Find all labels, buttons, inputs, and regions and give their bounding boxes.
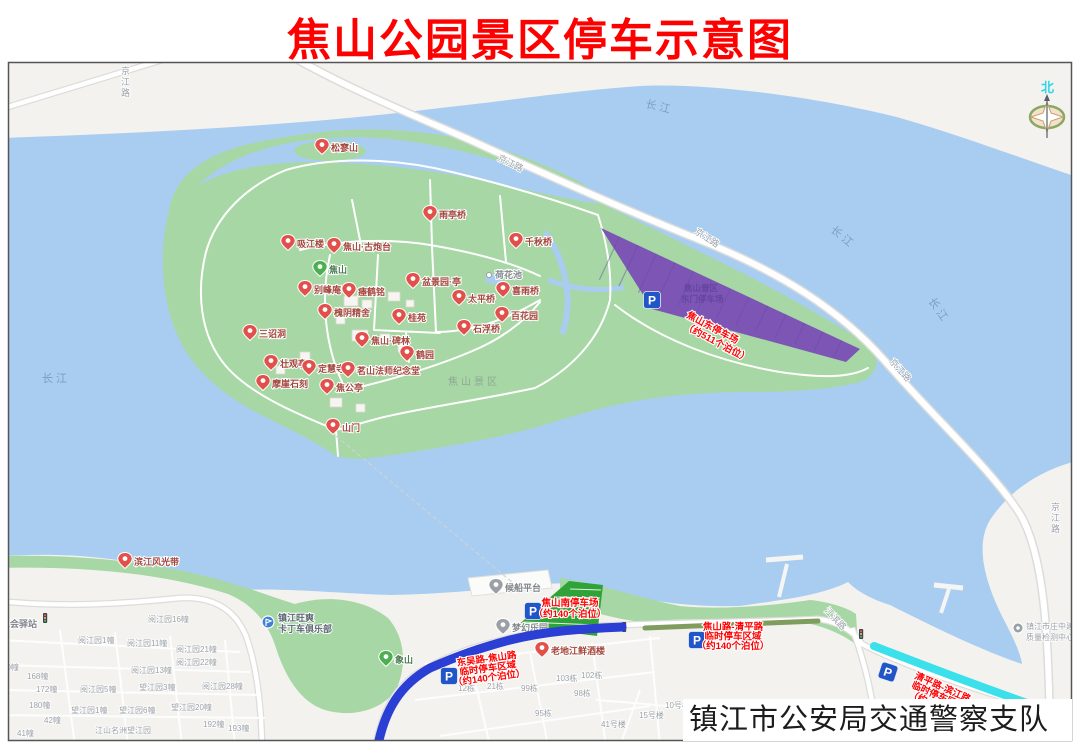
karting-club-label: 卡丁车俱乐部 bbox=[278, 623, 332, 634]
building-label: 阅江园11幢 bbox=[127, 638, 167, 648]
poi-label: 象山 bbox=[395, 654, 413, 665]
poi-label: 滨江风光带 bbox=[134, 556, 179, 567]
building-label: 阅江园13幢 bbox=[131, 665, 172, 675]
svg-text:P: P bbox=[445, 670, 453, 684]
poi-label: 别峰庵 bbox=[313, 284, 342, 295]
poi-label: 瘗鹤铭 bbox=[358, 286, 385, 297]
parking-label: 焦山南停车场（约140个泊位） bbox=[534, 597, 607, 620]
building-label: 42幢 bbox=[44, 715, 61, 725]
svg-text:（约140个泊位）: （约140个泊位） bbox=[697, 640, 770, 652]
scenic-area-label: 焦山景区 bbox=[448, 375, 500, 388]
building-label: 95栋 bbox=[535, 708, 552, 718]
traffic-light-icon bbox=[859, 629, 863, 639]
inspection-center-label: 质量检测中心 bbox=[1026, 632, 1074, 642]
poi-label: 雨亭桥 bbox=[439, 209, 467, 220]
poi-label: 焦山·古炮台 bbox=[342, 241, 391, 252]
svg-text:P: P bbox=[648, 294, 656, 308]
compass-north-label: 北 bbox=[1041, 80, 1054, 95]
traffic-light-icon bbox=[43, 613, 47, 623]
building-label: 阅江园28幢 bbox=[202, 681, 243, 691]
building-label: 阅江园1幢 bbox=[78, 635, 114, 645]
building-label: 望江园20幢 bbox=[171, 702, 212, 712]
poi-label: 焦公亭 bbox=[335, 382, 363, 393]
karting-club-label: 镇江旺爽 bbox=[278, 612, 314, 623]
building-label: 102栋 bbox=[581, 670, 602, 680]
poi-label: 石浮桥 bbox=[472, 323, 501, 334]
building-label: 193幢 bbox=[228, 723, 249, 733]
building-label: 60幢 bbox=[2, 662, 19, 672]
building-label: 望江园3幢 bbox=[139, 682, 175, 692]
poi-label: 盆景园·亭 bbox=[421, 276, 461, 287]
poi-label: 摩崖石刻 bbox=[272, 378, 308, 389]
poi-label: 鹤园 bbox=[416, 349, 434, 360]
building-label: 15号楼 bbox=[639, 710, 664, 720]
poi-label: 桂苑 bbox=[407, 312, 426, 323]
building-label: 168幢 bbox=[27, 671, 48, 681]
east-gate-lot-label: 焦山景区 bbox=[683, 283, 719, 293]
pond-dot bbox=[487, 273, 492, 278]
svg-text:（约140个泊位）: （约140个泊位） bbox=[534, 608, 607, 620]
poi-label: 喜雨桥 bbox=[512, 285, 540, 296]
parking-p-icon[interactable]: P bbox=[644, 292, 661, 309]
building-label: 103栋 bbox=[556, 673, 577, 683]
building-label: 阅江园16幢 bbox=[148, 614, 189, 624]
building-label: 98栋 bbox=[574, 688, 591, 698]
poi-label: 茗山法师纪念堂 bbox=[356, 365, 420, 376]
map-canvas[interactable]: 阅江园16幢阅江园1幢阅江园11幢阅江园21幢阅江园22幢阅江园13幢阅江园5幢… bbox=[0, 60, 1080, 746]
poi-label: 荷花池 bbox=[494, 269, 522, 280]
building-label: 41幢 bbox=[17, 728, 34, 738]
svg-text:焦山南停车场: 焦山南停车场 bbox=[540, 597, 599, 609]
estate-label: 江山名洲望江园 bbox=[95, 725, 151, 735]
building-label: 180幢 bbox=[29, 700, 50, 710]
building-label: 172幢 bbox=[36, 684, 57, 694]
poi-label: 焦山 bbox=[328, 264, 347, 275]
poi-label: 槐阴精舍 bbox=[333, 307, 371, 318]
yangtze-label: 长江 bbox=[42, 372, 70, 385]
inspection-center-icon[interactable] bbox=[1013, 623, 1023, 633]
building-label: 阅江园5幢 bbox=[80, 684, 116, 694]
poi-label: 三诏洞 bbox=[259, 328, 286, 339]
poi-label: 焦山·碑林 bbox=[370, 335, 411, 346]
poi-label: 山门 bbox=[342, 422, 360, 433]
poi-label: 百花园 bbox=[511, 310, 538, 321]
east-gate-lot-label: 东门停车场 bbox=[681, 294, 724, 304]
poi-label: 候船平台 bbox=[505, 582, 541, 593]
poi-label: 千秋桥 bbox=[525, 236, 553, 247]
poi-label: 松寥山 bbox=[331, 142, 358, 153]
poi-label: 老地江鲜酒楼 bbox=[550, 645, 605, 656]
poi-label: 工会驿站 bbox=[1, 618, 37, 629]
map: 阅江园16幢阅江园1幢阅江园11幢阅江园21幢阅江园22幢阅江园13幢阅江园5幢… bbox=[0, 0, 1080, 746]
poi-label: 太平桥 bbox=[467, 293, 496, 304]
building-label: 阅江园21幢 bbox=[176, 644, 217, 654]
poi-label: 吸江楼 bbox=[297, 238, 324, 249]
jingjiang-road-label: 京江路 bbox=[1051, 501, 1060, 534]
building-label: 41号楼 bbox=[601, 719, 626, 729]
building-label: 望江园6幢 bbox=[119, 705, 155, 715]
karting-club-icon[interactable] bbox=[262, 616, 274, 628]
building-label: 99栋 bbox=[521, 683, 538, 693]
building-label: 阅江园22幢 bbox=[176, 657, 217, 667]
footer-credit: 镇江市公安局交通警察支队 bbox=[683, 699, 1072, 741]
building-label: 192幢 bbox=[203, 719, 224, 729]
building-label: 望江园1幢 bbox=[71, 705, 107, 715]
jingjiang-road-label: 京江路 bbox=[121, 65, 130, 98]
parking-label: 焦山路-清平路临时停车区域（约140个泊位） bbox=[697, 621, 770, 652]
